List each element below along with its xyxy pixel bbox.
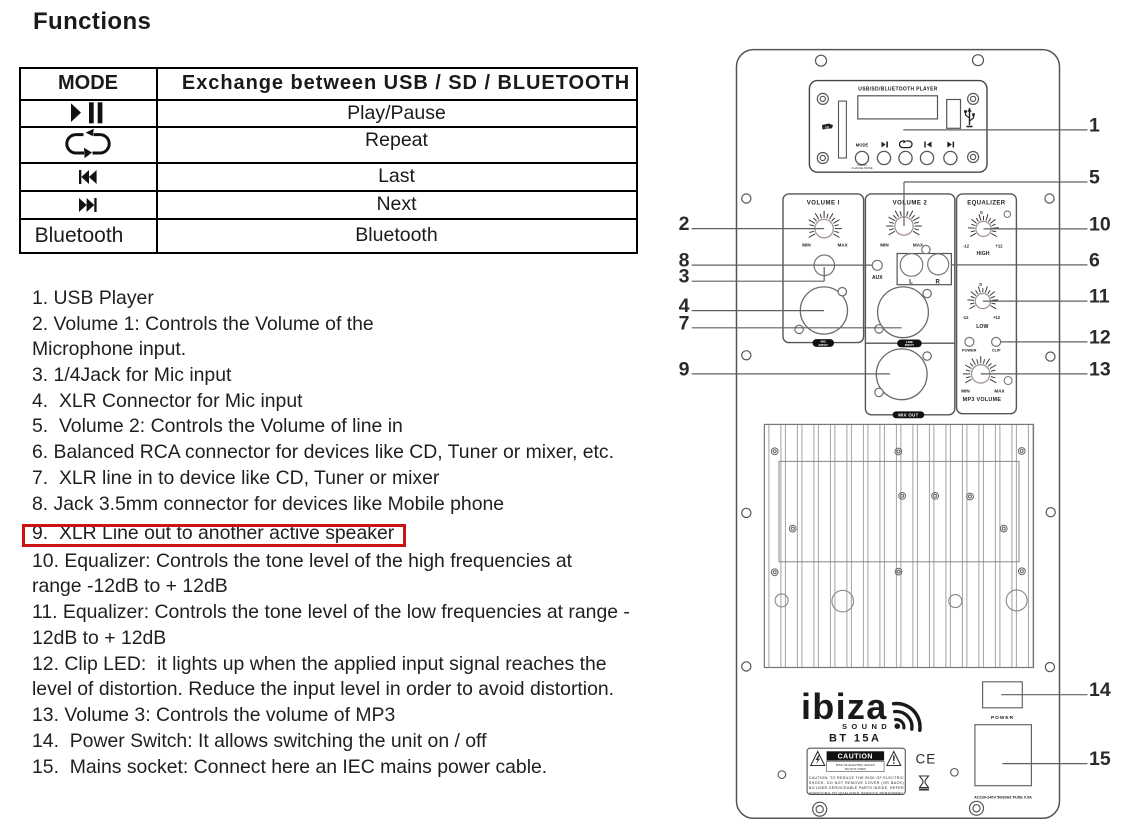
svg-text:6: 6 [1089, 249, 1100, 271]
svg-text:R: R [936, 279, 941, 285]
svg-text:CLIP: CLIP [992, 349, 1001, 353]
svg-text:+12: +12 [993, 315, 1001, 320]
svg-text:3: 3 [679, 266, 690, 288]
svg-text:15: 15 [1089, 748, 1111, 770]
svg-text:0: 0 [980, 210, 983, 215]
svg-text:POWER: POWER [962, 349, 977, 353]
svg-text:EQUALIZER: EQUALIZER [967, 201, 1006, 207]
svg-text:14: 14 [1089, 679, 1111, 701]
svg-text:NO USER-SERVICEABLE PARTS INSI: NO USER-SERVICEABLE PARTS INSIDE, REFER [809, 786, 904, 790]
svg-text:SHOCK, DO NOT REMOVE COVER (OR: SHOCK, DO NOT REMOVE COVER (OR BACK) [809, 781, 904, 785]
svg-text:POWER: POWER [991, 715, 1014, 721]
svg-text:ibiza: ibiza [801, 686, 888, 727]
svg-text:MIN: MIN [802, 243, 811, 248]
svg-text:+12: +12 [995, 244, 1003, 249]
svg-text:LOW: LOW [976, 324, 988, 330]
svg-text:10: 10 [1089, 213, 1111, 235]
svg-text:SERVICING TO QUALIFIED SERVICE: SERVICING TO QUALIFIED SERVICE PERSONNEL [809, 791, 904, 795]
svg-text:0: 0 [979, 282, 982, 287]
svg-text:MIN: MIN [880, 243, 889, 248]
svg-text:MODE: MODE [856, 143, 869, 148]
svg-text:CE: CE [916, 752, 937, 767]
svg-text:MIX OUT: MIX OUT [898, 413, 918, 418]
svg-text:2: 2 [679, 213, 690, 235]
svg-text:HIGH: HIGH [977, 251, 990, 257]
svg-text:AUX: AUX [872, 275, 883, 281]
svg-text:MP3 VOLUME: MP3 VOLUME [963, 397, 1002, 403]
svg-text:MAX: MAX [837, 243, 848, 248]
svg-text:-12: -12 [962, 315, 969, 320]
svg-text:5: 5 [1089, 167, 1100, 189]
svg-text:13: 13 [1089, 358, 1111, 380]
svg-text:MAX: MAX [994, 389, 1005, 394]
svg-text:11: 11 [1089, 286, 1110, 308]
svg-text:1: 1 [1089, 114, 1100, 136]
svg-text:L: L [909, 279, 913, 285]
svg-text:7: 7 [679, 312, 690, 334]
svg-text:CHANGE MODE: CHANGE MODE [851, 166, 872, 170]
svg-text:9: 9 [679, 358, 690, 380]
svg-text:CAUTION: CAUTION [838, 754, 873, 761]
svg-text:AC230-240V 50/60HZ FUSE 0.5A: AC230-240V 50/60HZ FUSE 0.5A [974, 796, 1032, 800]
svg-text:BT 15A: BT 15A [829, 733, 881, 745]
svg-text:USB/SD/BLUETOOTH PLAYER: USB/SD/BLUETOOTH PLAYER [858, 87, 937, 93]
svg-text:SOUND: SOUND [842, 722, 891, 731]
svg-text:DO NOT OPEN: DO NOT OPEN [845, 767, 866, 771]
svg-text:12: 12 [1089, 326, 1111, 348]
svg-text:-12: -12 [963, 244, 970, 249]
svg-text:VOLUME 2: VOLUME 2 [893, 201, 928, 207]
svg-text:VOLUME I: VOLUME I [807, 201, 840, 207]
svg-text:MIN: MIN [961, 389, 970, 394]
svg-text:INPUT: INPUT [905, 343, 914, 347]
svg-text:CAUTION: TO REDUCE THE RISK OF: CAUTION: TO REDUCE THE RISK OF ELECTRIC [809, 776, 904, 780]
svg-text:INPUT: INPUT [819, 343, 828, 347]
